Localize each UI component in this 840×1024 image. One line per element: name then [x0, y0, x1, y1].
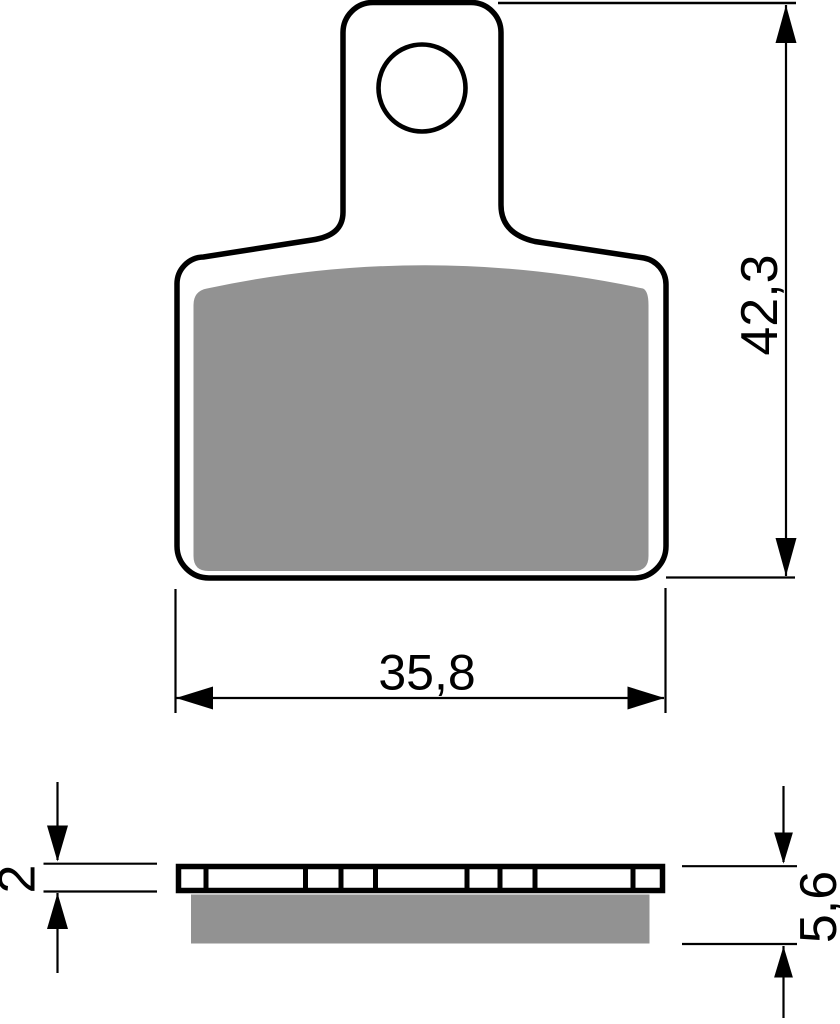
svg-text:35,8: 35,8 — [378, 645, 475, 701]
svg-text:2: 2 — [0, 865, 46, 894]
svg-text:42,3: 42,3 — [731, 254, 789, 355]
svg-text:5,6: 5,6 — [790, 871, 840, 943]
